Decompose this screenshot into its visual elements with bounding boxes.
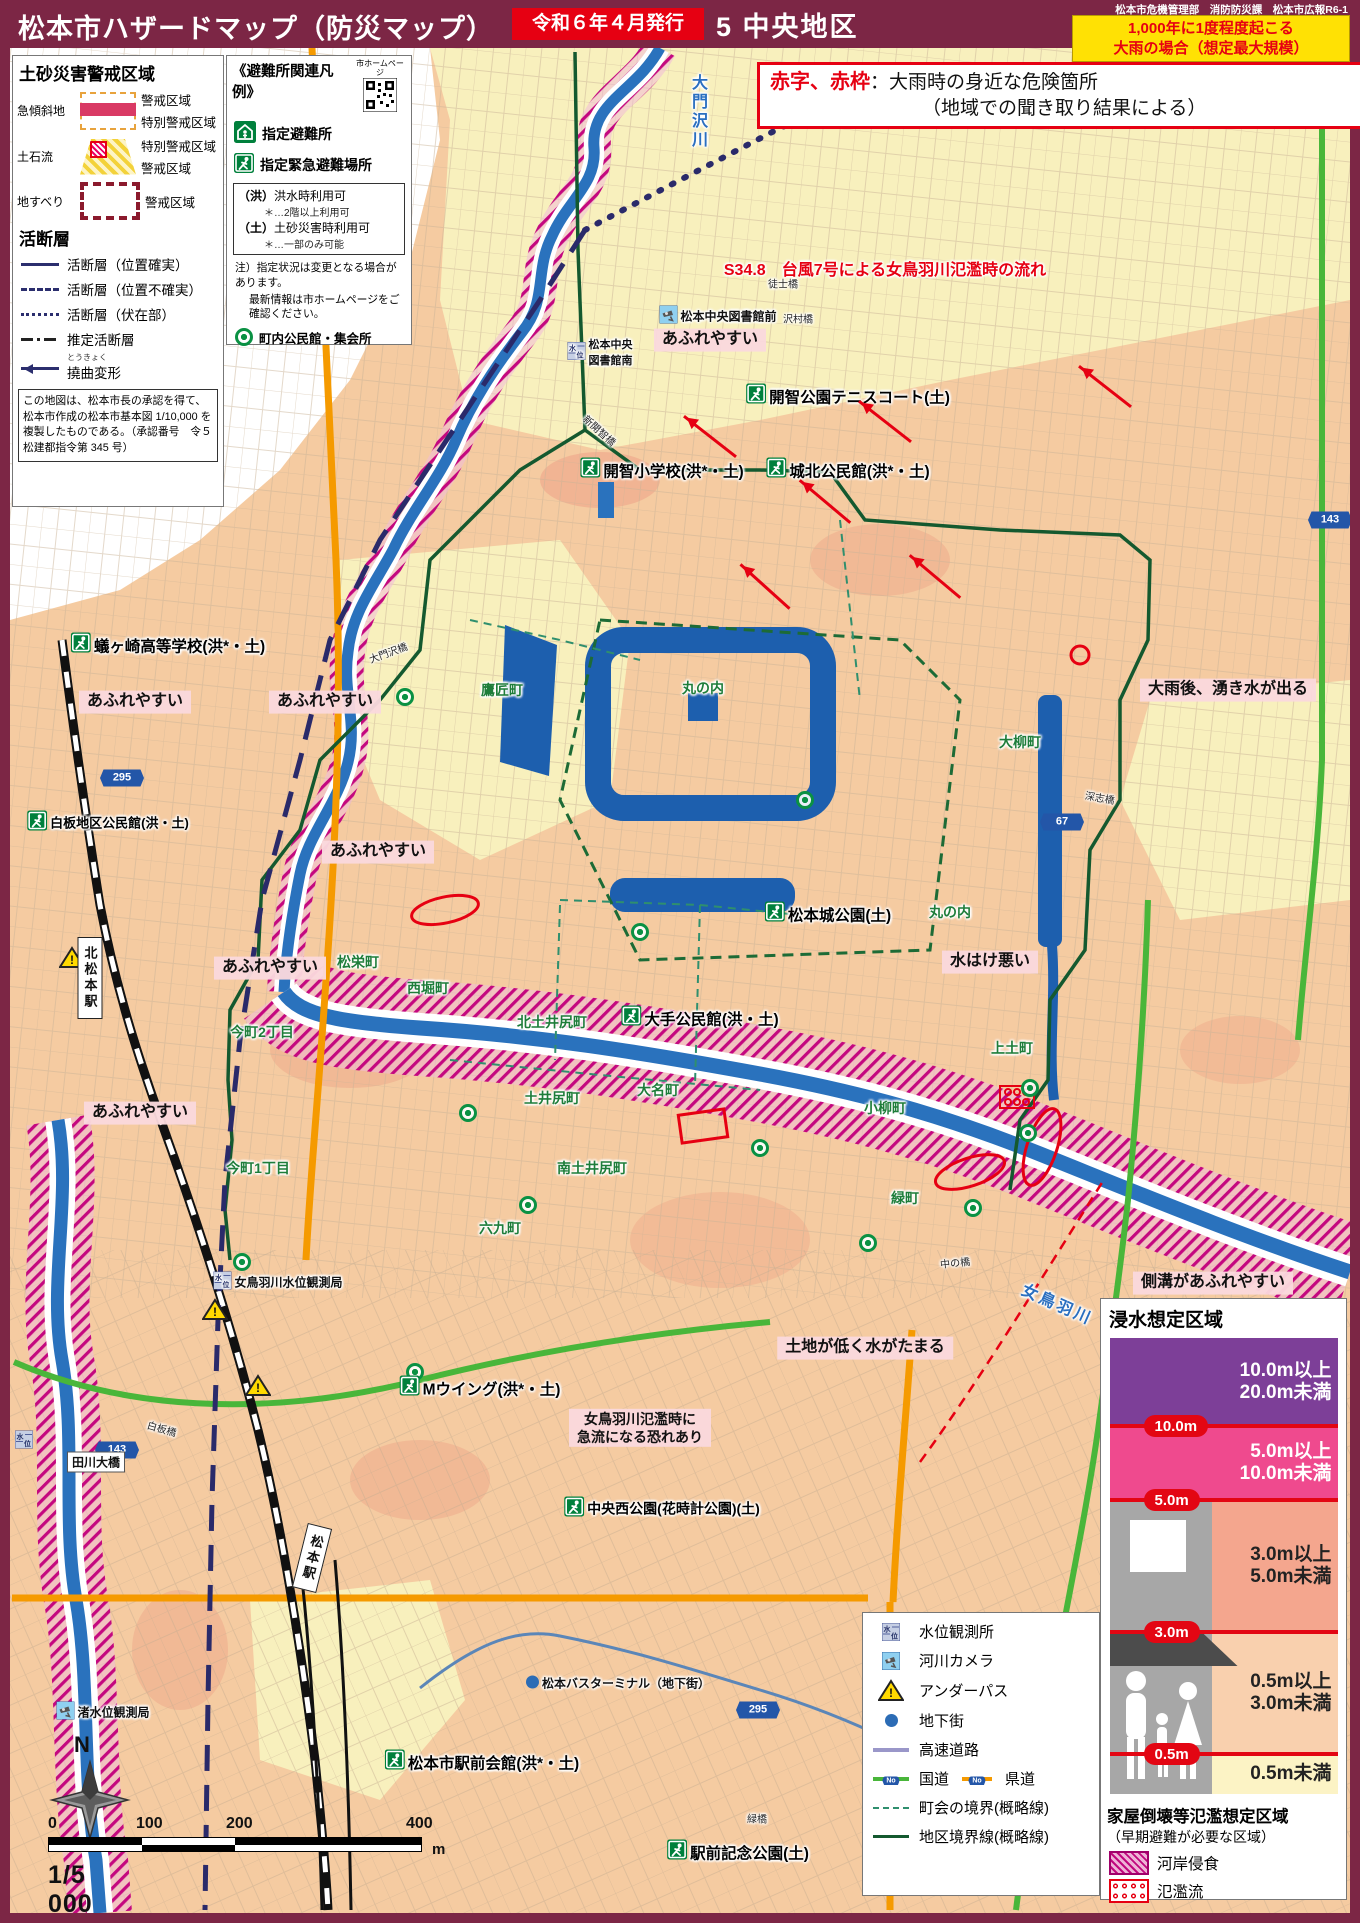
sediment-category-label: 土石流 xyxy=(17,148,75,165)
hearing-result-note: 赤字、赤枠：大雨時の身近な危険箇所 （地域での聞き取り結果による） xyxy=(757,62,1360,129)
usage-key: （洪） xyxy=(238,189,274,203)
town-boundary-line-sample xyxy=(873,1807,909,1809)
qr-caption: 市ホームページ xyxy=(354,60,406,78)
label-text: 丸の内 xyxy=(929,904,971,920)
hearing-note-body: ：大雨時の身近な危険箇所 xyxy=(870,72,1098,93)
hearing-note-line2: （地域での聞き取り結果による） xyxy=(770,96,1360,122)
compass-north-label: N xyxy=(74,1732,132,1758)
label-text: 北松本駅 xyxy=(83,946,98,1010)
scale-tick-0: 0 xyxy=(48,1815,57,1833)
town-name-label: 今町2丁目 xyxy=(230,1022,294,1042)
underpass-warning-icon: ! xyxy=(878,1679,904,1702)
shelter-facility-label: 蟻ヶ崎高等学校(洪*・土) xyxy=(71,633,265,658)
fault-label-wrap: 活断層（位置確実） xyxy=(67,254,189,275)
community-hall-icon xyxy=(235,328,253,346)
water-level-icon: 水位 xyxy=(568,342,586,360)
map-icon-wrap: 水位 xyxy=(213,1272,231,1293)
hazard-note-label: 女鳥羽川氾濫時に 急流になる恐れあり xyxy=(569,1409,711,1447)
map-ratio: 1/5 000 xyxy=(48,1861,93,1919)
bridge-name-label: 田川大橋 xyxy=(67,1452,125,1473)
underpass-warning-icon: ! xyxy=(245,1374,271,1397)
symbol-icon-wrap: No xyxy=(957,1777,997,1781)
river-name-label: 大門沢川 xyxy=(685,74,709,150)
svg-text:位: 位 xyxy=(222,1280,229,1289)
zone-label: 特別警戒区域 xyxy=(141,112,216,131)
label-text: 大柳町 xyxy=(999,734,1041,750)
flood-band: 10.0m以上 20.0m未満 xyxy=(1110,1338,1338,1426)
hazard-note-label: あふれやすい xyxy=(84,1102,196,1125)
usage-note: ＊…2階以上利用可 xyxy=(264,204,400,219)
evacuation-site-icon xyxy=(234,153,254,173)
hazard-note-label: あふれやすい xyxy=(654,329,766,352)
shelter-icon-wrap xyxy=(234,153,254,176)
hazard-note-label: あふれやすい xyxy=(269,691,381,714)
community-hall-marker xyxy=(459,1104,477,1122)
map-icon-wrap xyxy=(766,458,786,483)
community-hall-marker xyxy=(796,791,814,809)
symbol-legend-row: 町会の境界(概略線) xyxy=(871,1797,1091,1818)
fault-label-wrap: 活断層（伏在部） xyxy=(67,304,175,325)
shelter-facility-label: 松本城公園(土) xyxy=(765,902,891,927)
community-hall-label: 町内公民館・集会所 xyxy=(259,328,372,347)
scale-tick-100: 100 xyxy=(136,1815,163,1833)
label-text: 土井尻町 xyxy=(524,1090,580,1106)
label-text: 女鳥羽川水位観測局 xyxy=(234,1274,342,1291)
evacuation-site-icon xyxy=(564,1497,584,1517)
underpass-warning-icon: ! xyxy=(202,1298,228,1321)
water-level-marker: 水位 xyxy=(15,1431,33,1454)
label-text: 側溝があふれやすい xyxy=(1141,1274,1285,1291)
people-icon xyxy=(1116,1667,1216,1785)
underpass-warning-marker: ! xyxy=(245,1374,271,1402)
fault-legend-title: 活断層 xyxy=(19,225,217,250)
scale-bar xyxy=(48,1837,422,1852)
label-text: 緑橋 xyxy=(747,1815,767,1826)
town-name-label: 上土町 xyxy=(991,1038,1033,1058)
label-text: 今町2丁目 xyxy=(230,1024,294,1040)
fault-label-wrap: 推定活断層 xyxy=(67,329,135,350)
svg-text:!: ! xyxy=(70,953,74,967)
hazard-note-label: 水はけ悪い xyxy=(942,951,1038,974)
label-text: 松本市駅前会館(洪*・土) xyxy=(408,1751,579,1773)
map-icon-wrap xyxy=(56,1702,74,1723)
fault-line-sample-dashed xyxy=(21,288,59,291)
evacuation-site-icon xyxy=(765,902,785,922)
map-icon-wrap xyxy=(621,1006,641,1031)
fault-line-sample-solid xyxy=(21,263,59,266)
label-text: 大門沢川 xyxy=(689,74,706,150)
flood-band: 5.0m以上 10.0m未満 xyxy=(1110,1426,1338,1500)
symbol-label: 地区境界線(概略線) xyxy=(919,1826,1049,1847)
shelter-facility-label: Mウイング(洪*・土) xyxy=(400,1376,561,1401)
zone-label: 警戒区域 xyxy=(141,90,216,109)
usage-label: 土砂災害時利用可 xyxy=(274,221,370,235)
shelter-facility-label: 中央西公園(花時計公園)(土) xyxy=(564,1497,760,1520)
community-hall-marker xyxy=(859,1234,877,1252)
facility-label: 渚水位観測局 xyxy=(56,1702,149,1723)
facility-label: 松本バスターミナル（地下街） xyxy=(526,1675,710,1692)
shelter-facility-label: 大手公民館(洪・土) xyxy=(621,1006,778,1031)
hazard-note-label: 土地が低く水がたまる xyxy=(777,1337,953,1360)
label-text: Mウイング(洪*・土) xyxy=(423,1377,561,1399)
shelter-facility-label: 白板地区公民館(洪・土) xyxy=(27,811,189,834)
map-icon-wrap xyxy=(385,1750,405,1775)
fault-legend-row: 活断層（伏在部） xyxy=(21,304,215,325)
route-shield: 67 xyxy=(1040,814,1084,831)
label-text: 開智小学校(洪*・土) xyxy=(603,459,743,481)
shelter-legend-rows: 指定避難所指定緊急避難場所 xyxy=(227,121,411,176)
symbol-icon-wrap: 水位 xyxy=(871,1623,911,1641)
depth-separator-line: 10.0m xyxy=(1110,1424,1338,1428)
scale-unit: m xyxy=(432,1841,445,1858)
label-text: 西堀町 xyxy=(407,980,449,996)
town-name-label: 土井尻町 xyxy=(524,1088,580,1108)
label-text: 徒士橋 xyxy=(768,280,798,291)
sediment-legend-rows: 急傾斜地警戒区域特別警戒区域土石流特別警戒区域警戒区域地すべり警戒区域 xyxy=(13,90,223,220)
prefectural-route-line-sample: No xyxy=(962,1777,992,1781)
district-title: 5 中央地区 xyxy=(716,5,859,44)
flood-band-label: 0.5m以上 3.0m未満 xyxy=(1250,1671,1331,1715)
label-text: 上土町 xyxy=(991,1040,1033,1056)
designated-shelter-icon xyxy=(234,121,256,143)
label-text: 城北公民館(洪*・土) xyxy=(789,459,929,481)
label-text: 白板地区公民館(洪・土) xyxy=(50,813,189,832)
label-text: 松本中央 図書館南 xyxy=(589,336,633,368)
label-text: 丸の内 xyxy=(682,680,724,696)
symbol-legend-panel: 水位水位観測所河川カメラ!アンダーパス地下街高速道路No国道No県道町会の境界(… xyxy=(862,1612,1100,1896)
collapse-zone-legend: 家屋倒壊等氾濫想定区域 （早期避難が必要な区域） 河岸侵食氾濫流 xyxy=(1107,1803,1340,1903)
map-icon-wrap xyxy=(659,306,677,327)
facility-label: 水位女鳥羽川水位観測局 xyxy=(213,1272,342,1293)
usage-key: （土） xyxy=(238,221,274,235)
sediment-zone-labels: 特別警戒区域警戒区域 xyxy=(141,136,216,177)
shelter-facility-label: 松本市駅前会館(洪*・土) xyxy=(385,1750,579,1775)
collapse-item-label: 氾濫流 xyxy=(1157,1880,1204,1902)
symbol-icon-wrap xyxy=(871,1807,911,1809)
hazard-note-label: あふれやすい xyxy=(79,691,191,714)
svg-text:水: 水 xyxy=(215,1273,223,1282)
map-icon-wrap xyxy=(667,1840,687,1865)
flood-depth-graphic: 10.0m以上 20.0m未満5.0m以上 10.0m未満3.0m以上 5.0m… xyxy=(1110,1338,1338,1794)
sediment-category-label: 急傾斜地 xyxy=(17,102,75,119)
fault-legend-row: 活断層（位置確実） xyxy=(21,254,215,275)
depth-marker: 5.0m xyxy=(1144,1489,1200,1511)
fault-label-wrap: 活断層（位置不確実） xyxy=(67,279,202,300)
community-hall-marker xyxy=(631,923,649,941)
depth-marker: 3.0m xyxy=(1144,1621,1200,1643)
map-copyright-note: この地図は、松本市長の承認を得て、松本市作成の松本市基本図 1/10,000 を… xyxy=(18,389,218,462)
town-name-label: 大柳町 xyxy=(999,732,1041,752)
label-text: 松本城公園(土) xyxy=(788,903,891,925)
underground-mall-icon xyxy=(526,1675,539,1688)
label-text: 水はけ悪い xyxy=(950,953,1030,970)
flood-legend-title: 浸水想定区域 xyxy=(1109,1305,1338,1332)
collapse-legend-row: 氾濫流 xyxy=(1109,1879,1338,1903)
label-text: 大雨後、湧き水が出る xyxy=(1148,681,1308,698)
map-icon-wrap xyxy=(746,384,766,409)
map-icon-wrap xyxy=(765,902,785,927)
map-icon-wrap xyxy=(580,458,600,483)
steep-swatch xyxy=(80,92,136,130)
fault-legend-row: 活断層（位置不確実） xyxy=(21,279,215,300)
shelter-type-label: 指定緊急避難場所 xyxy=(260,155,372,175)
fault-label: 推定活断層 xyxy=(67,333,135,348)
svg-text:水: 水 xyxy=(884,1624,892,1633)
zone-label: 特別警戒区域 xyxy=(141,136,216,155)
community-hall-marker xyxy=(1019,1124,1037,1142)
svg-text:水: 水 xyxy=(569,343,577,352)
label-text: 田川大橋 xyxy=(72,1456,120,1470)
label-text: 南土井尻町 xyxy=(557,1160,627,1176)
symbol-label: 国道 xyxy=(919,1768,949,1789)
symbol-legend-row: !アンダーパス xyxy=(871,1679,1091,1702)
compass: N xyxy=(48,1732,132,1847)
sediment-legend-row: 急傾斜地警戒区域特別警戒区域 xyxy=(17,90,219,131)
issue-date-badge: 令和６年４月発行 xyxy=(512,8,704,40)
symbol-label: 河川カメラ xyxy=(919,1650,994,1671)
label-text: あふれやすい xyxy=(87,693,183,710)
fault-label: 活断層（伏在部） xyxy=(67,308,175,323)
label-text: 大手公民館(洪・土) xyxy=(644,1007,778,1029)
water-level-icon: 水位 xyxy=(15,1431,33,1449)
compass-rose-icon xyxy=(48,1758,132,1842)
town-name-label: 鷹匠町 xyxy=(481,680,523,700)
debris-swatch xyxy=(80,139,136,175)
label-text: 蟻ヶ崎高等学校(洪*・土) xyxy=(94,634,265,656)
sediment-zone-labels: 警戒区域 xyxy=(145,192,195,211)
symbol-label: 高速道路 xyxy=(919,1739,979,1760)
symbol-icon-wrap: No xyxy=(871,1777,911,1781)
fault-legend-row: とうきょく撓曲変形 xyxy=(21,354,215,383)
symbol-label: アンダーパス xyxy=(919,1680,1008,1701)
route-shield: 143 xyxy=(1308,512,1350,529)
label-text: あふれやすい xyxy=(277,693,373,710)
evacuation-site-icon xyxy=(400,1376,420,1396)
depth-marker: 10.0m xyxy=(1144,1415,1209,1437)
fault-label: 活断層（位置確実） xyxy=(67,258,189,273)
facility-label: 松本中央図書館前 xyxy=(659,306,776,327)
fault-line-sample-dotted xyxy=(21,313,59,316)
svg-text:!: ! xyxy=(213,1305,217,1319)
community-hall-row: 町内公民館・集会所 xyxy=(235,328,403,347)
community-hall-marker xyxy=(233,1253,251,1271)
usage-line: （土）土砂災害時利用可 xyxy=(238,219,400,236)
map-icon-wrap xyxy=(526,1675,539,1691)
map-icon-wrap: 水位 xyxy=(568,342,586,363)
fault-label: 活断層（位置不確実） xyxy=(67,283,202,298)
label-text: 渚水位観測局 xyxy=(77,1704,149,1721)
svg-text:位: 位 xyxy=(891,1631,898,1640)
fault-label: 撓曲変形 xyxy=(67,366,121,381)
label-text: 今町1丁目 xyxy=(226,1160,290,1176)
symbol-legend-row: 地下街 xyxy=(871,1710,1091,1731)
hazard-note-label: 大雨後、湧き水が出る xyxy=(1140,679,1316,702)
community-hall-marker xyxy=(751,1139,769,1157)
shelter-legend-row: 指定緊急避難場所 xyxy=(234,153,404,176)
label-text: 小柳町 xyxy=(864,1100,906,1116)
label-text: 土地が低く水がたまる xyxy=(785,1339,945,1356)
station-label: 北松本駅 xyxy=(78,937,103,1019)
river-camera-icon xyxy=(56,1702,74,1720)
underpass-warning-marker: ! xyxy=(202,1298,228,1326)
zone-label: 警戒区域 xyxy=(145,192,195,211)
label-text: あふれやすい xyxy=(662,331,758,348)
label-text: 松栄町 xyxy=(337,954,379,970)
zone-label: 警戒区域 xyxy=(141,158,216,177)
svg-text:!: ! xyxy=(889,1686,893,1700)
svg-text:!: ! xyxy=(256,1381,260,1395)
qr-block: 市ホームページ xyxy=(354,60,406,114)
label-text: あふれやすい xyxy=(330,843,426,860)
town-name-label: 小柳町 xyxy=(864,1098,906,1118)
shelter-legend-panel: 《避難所関連凡例》 市ホームページ 指定避難所指定緊急避難場所 （洪）洪水時利用… xyxy=(226,55,412,345)
town-name-label: 南土井尻町 xyxy=(557,1158,627,1178)
town-name-label: 六九町 xyxy=(479,1218,521,1238)
label-text: 中央西公園(花時計公園)(土) xyxy=(587,1498,760,1518)
route-shield: 295 xyxy=(736,1702,780,1719)
route-shield: 295 xyxy=(100,770,144,787)
district-boundary-line-sample xyxy=(873,1835,909,1838)
map-icon-wrap xyxy=(564,1497,584,1520)
svg-text:位: 位 xyxy=(577,350,584,359)
shelter-facility-label: 開智公園テニスコート(土) xyxy=(746,384,950,409)
qr-code xyxy=(363,78,397,112)
shelter-legend-title: 《避難所関連凡例》 xyxy=(232,60,354,102)
river-camera-icon xyxy=(882,1652,900,1670)
flood-depth-legend-panel: 浸水想定区域 10.0m以上 20.0m未満5.0m以上 10.0m未満3.0m… xyxy=(1100,1298,1347,1900)
slide-swatch xyxy=(80,182,140,220)
rain-scenario-badge: 1,000年に1度程度起こる 大雨の場合（想定最大規模） xyxy=(1072,15,1350,62)
evacuation-site-icon xyxy=(385,1750,405,1770)
facility-label: 水位松本中央 図書館南 xyxy=(568,336,633,368)
community-hall-marker xyxy=(519,1196,537,1214)
evacuation-site-icon xyxy=(27,811,47,831)
shelter-note-1: 注）指定状況は変更となる場合があります。 xyxy=(235,261,403,290)
hazard-note-label: あふれやすい xyxy=(214,957,326,980)
underground-mall-icon xyxy=(885,1714,898,1727)
collapse-legend-row: 河岸侵食 xyxy=(1109,1851,1338,1875)
fault-label-wrap: とうきょく撓曲変形 xyxy=(67,354,121,383)
water-level-icon: 水位 xyxy=(213,1272,231,1290)
label-text: 女鳥羽川氾濫時に 急流になる恐れあり xyxy=(577,1411,703,1445)
symbol-icon-wrap: ! xyxy=(871,1679,911,1702)
symbol-legend-row: 地区境界線(概略線) xyxy=(871,1826,1091,1847)
expressway-line-sample xyxy=(873,1748,909,1752)
town-name-label: 丸の内 xyxy=(929,902,971,922)
building-window xyxy=(1130,1520,1186,1572)
symbol-label: 県道 xyxy=(1005,1768,1035,1789)
collapse-legend-title: 家屋倒壊等氾濫想定区域 xyxy=(1107,1803,1340,1827)
flood-band-label: 3.0m以上 5.0m未満 xyxy=(1250,1544,1331,1588)
shelter-facility-label: 城北公民館(洪*・土) xyxy=(766,458,929,483)
river-camera-icon xyxy=(659,306,677,324)
evacuation-site-icon xyxy=(746,384,766,404)
scenario-line1: 1,000年に1度程度起こる xyxy=(1073,19,1349,39)
symbol-legend-row: 河川カメラ xyxy=(871,1650,1091,1671)
symbol-label: 町会の境界(概略線) xyxy=(919,1797,1049,1818)
shelter-note-2: 最新情報は市ホームページをご確認ください。 xyxy=(235,293,403,322)
shelter-icon-wrap xyxy=(234,121,256,146)
hearing-note-lead: 赤字、赤枠 xyxy=(770,71,870,93)
collapse-legend-sub: （早期避難が必要な区域） xyxy=(1107,1827,1340,1847)
symbol-icon-wrap xyxy=(871,1652,911,1670)
depth-separator-line: 0.5m xyxy=(1110,1752,1338,1756)
scenario-line2: 大雨の場合（想定最大規模） xyxy=(1073,39,1349,59)
symbol-legend-row: No国道No県道 xyxy=(871,1768,1091,1789)
bridge-name-label: 中の橋 xyxy=(939,1253,970,1271)
fault-legend-row: 推定活断層 xyxy=(21,329,215,350)
fault-legend-rows: 活断層（位置確実）活断層（位置不確実）活断層（伏在部）推定活断層とうきょく撓曲変… xyxy=(13,254,223,383)
evacuation-site-icon xyxy=(766,458,786,478)
collapse-item-label: 河岸侵食 xyxy=(1157,1852,1219,1874)
bridge-name-label: 沢村橋 xyxy=(783,311,813,326)
label-text: 松本バスターミナル（地下街） xyxy=(542,1675,710,1692)
people-silhouettes xyxy=(1116,1667,1216,1790)
map-icon-wrap xyxy=(71,633,91,658)
evacuation-site-icon xyxy=(580,458,600,478)
page-title: 松本市ハザードマップ（防災マップ） xyxy=(18,7,494,46)
evacuation-site-icon xyxy=(621,1006,641,1026)
flow-swatch xyxy=(1109,1879,1149,1903)
evacuation-site-icon xyxy=(71,633,91,653)
symbol-label: 地下街 xyxy=(919,1710,964,1731)
bridge-name-label: 緑橋 xyxy=(747,1811,767,1826)
collapse-legend-rows: 河岸侵食氾濫流 xyxy=(1107,1851,1340,1903)
hazard-map-page: 松本市ハザードマップ（防災マップ） 令和６年４月発行 5 中央地区 松本市危機管… xyxy=(0,0,1360,1923)
shelter-facility-label: 駅前記念公園(土) xyxy=(667,1840,809,1865)
sediment-category-label: 地すべり xyxy=(17,193,75,210)
shelter-usage-box: （洪）洪水時利用可＊…2階以上利用可（土）土砂災害時利用可＊…一部のみ可能 xyxy=(233,183,405,255)
label-text: 鷹匠町 xyxy=(481,682,523,698)
shelter-facility-label: 開智小学校(洪*・土) xyxy=(580,458,743,483)
label-text: 六九町 xyxy=(479,1220,521,1236)
sediment-legend-title: 土砂災害警戒区域 xyxy=(19,60,217,85)
shelter-type-label: 指定避難所 xyxy=(262,124,332,144)
sediment-zone-labels: 警戒区域特別警戒区域 xyxy=(141,90,216,131)
label-text: あふれやすい xyxy=(222,959,318,976)
town-name-label: 緑町 xyxy=(891,1188,919,1208)
label-text: あふれやすい xyxy=(92,1104,188,1121)
map-icon-wrap xyxy=(27,811,47,834)
town-name-label: 北土井尻町 xyxy=(517,1012,587,1032)
scale-tick-400: 400 xyxy=(406,1815,433,1833)
symbol-legend-rows: 水位水位観測所河川カメラ!アンダーパス地下街高速道路No国道No県道町会の境界(… xyxy=(863,1621,1099,1847)
sediment-legend-row: 地すべり警戒区域 xyxy=(17,182,219,220)
erosion-swatch xyxy=(1109,1851,1149,1875)
usage-note: ＊…一部のみ可能 xyxy=(264,236,400,251)
symbol-legend-row: 水位水位観測所 xyxy=(871,1621,1091,1642)
flood-band-label: 5.0m以上 10.0m未満 xyxy=(1240,1441,1332,1485)
label-text: 緑町 xyxy=(891,1190,919,1206)
usage-label: 洪水時利用可 xyxy=(274,189,346,203)
sediment-legend-panel: 土砂災害警戒区域 急傾斜地警戒区域特別警戒区域土石流特別警戒区域警戒区域地すべり… xyxy=(12,55,224,507)
hazard-note-label: 側溝があふれやすい xyxy=(1133,1272,1293,1295)
label-text: 北土井尻町 xyxy=(517,1014,587,1030)
fault-label-ruby: とうきょく xyxy=(67,354,121,362)
community-hall-marker xyxy=(1021,1079,1039,1097)
hazard-note-label: あふれやすい xyxy=(322,841,434,864)
shelter-legend-row: 指定避難所 xyxy=(234,121,404,146)
symbol-icon-wrap xyxy=(871,1835,911,1838)
symbol-icon-wrap xyxy=(871,1748,911,1752)
water-level-icon: 水位 xyxy=(882,1623,900,1641)
fault-line-sample-arrow xyxy=(21,367,59,370)
community-hall-marker xyxy=(396,688,414,706)
flood-band-label: 10.0m以上 20.0m未満 xyxy=(1240,1360,1332,1404)
town-name-label: 松栄町 xyxy=(337,952,379,972)
symbol-icon-wrap xyxy=(871,1714,911,1727)
national-route-line-sample: No xyxy=(873,1777,909,1781)
